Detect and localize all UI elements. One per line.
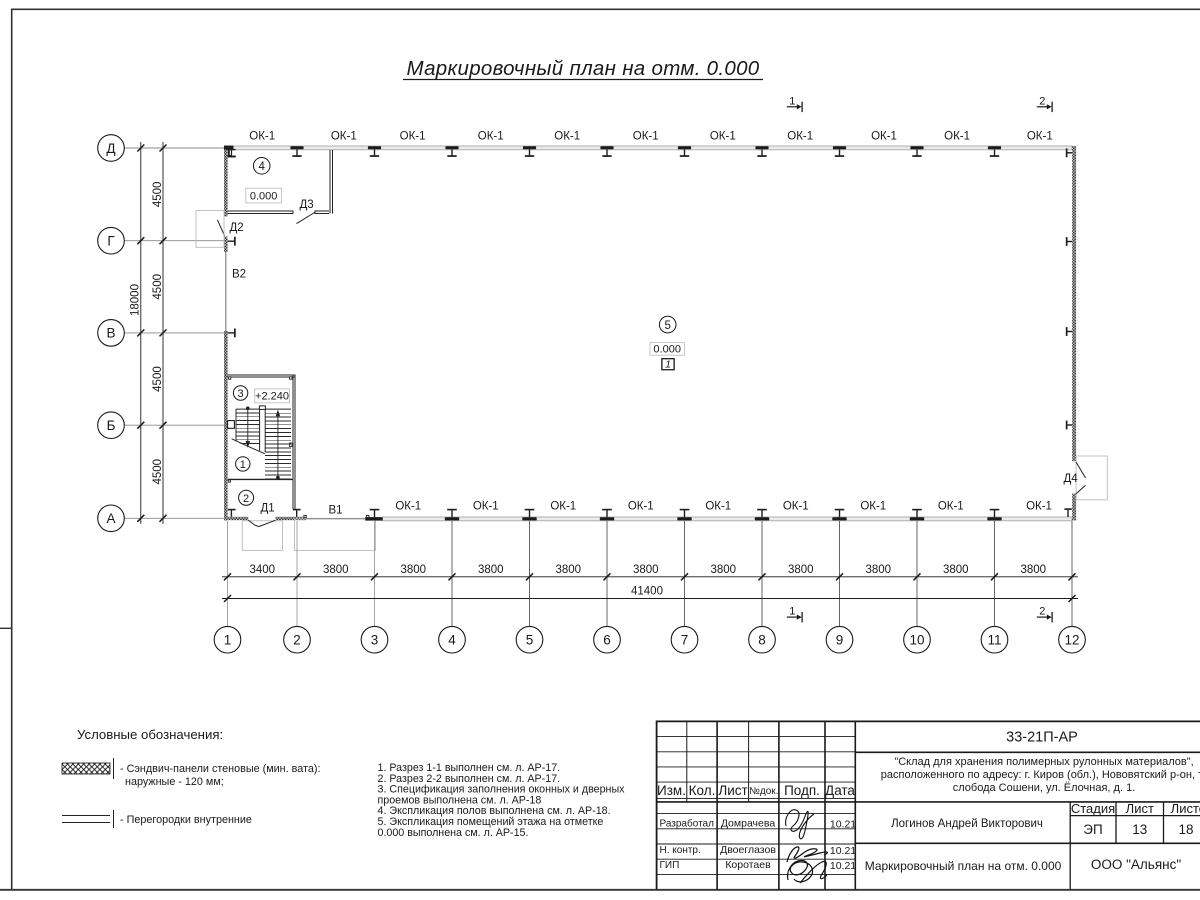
svg-text:Д: Д (106, 141, 115, 156)
svg-text:0.000: 0.000 (653, 344, 681, 356)
svg-text:Маркировочный план на отм. 0.0: Маркировочный план на отм. 0.000 (865, 859, 1062, 873)
svg-text:18: 18 (1178, 822, 1193, 837)
svg-text:11: 11 (987, 632, 1001, 647)
svg-text:ГИП: ГИП (660, 860, 680, 871)
svg-text:Стадия: Стадия (1071, 801, 1115, 816)
svg-text:Д4: Д4 (1064, 473, 1079, 485)
svg-text:3800: 3800 (710, 564, 736, 576)
svg-text:Лист: Лист (718, 783, 747, 798)
svg-text:В1: В1 (329, 505, 343, 517)
svg-text:- Сэндвич-панели стеновые (мин: - Сэндвич-панели стеновые (мин. вата): (120, 763, 320, 775)
svg-text:ОК-1: ОК-1 (860, 501, 886, 513)
svg-text:ОК-1: ОК-1 (1026, 501, 1052, 513)
svg-text:Условные обозначения:: Условные обозначения: (77, 727, 223, 742)
svg-text:10: 10 (909, 632, 924, 647)
svg-text:№док.: №док. (749, 786, 778, 797)
svg-text:ОК-1: ОК-1 (633, 131, 659, 143)
svg-text:1: 1 (789, 606, 795, 618)
svg-text:0.000: 0.000 (250, 190, 278, 202)
svg-text:0.000 выполнена см. л. АР-15.: 0.000 выполнена см. л. АР-15. (378, 827, 529, 839)
svg-text:13: 13 (1132, 822, 1147, 837)
svg-text:4500: 4500 (152, 182, 164, 208)
svg-text:Г: Г (107, 234, 115, 249)
svg-text:2: 2 (1039, 606, 1045, 618)
svg-text:ОК-1: ОК-1 (478, 131, 504, 143)
svg-text:- Перегородки внутренние: - Перегородки внутренние (120, 814, 252, 826)
svg-text:ОК-1: ОК-1 (331, 131, 357, 143)
svg-text:Подп.: Подп. (784, 783, 820, 798)
svg-text:Д2: Д2 (230, 222, 244, 234)
svg-text:4500: 4500 (152, 459, 164, 485)
svg-text:12: 12 (1064, 632, 1079, 647)
svg-text:ОК-1: ОК-1 (938, 501, 964, 513)
svg-text:Лист: Лист (1126, 801, 1154, 816)
svg-text:+2.240: +2.240 (255, 391, 289, 403)
svg-text:Логинов Андрей Викторович: Логинов Андрей Викторович (891, 818, 1043, 830)
svg-text:3800: 3800 (323, 564, 349, 576)
svg-text:18000: 18000 (130, 284, 142, 316)
svg-text:В2: В2 (232, 269, 246, 281)
svg-text:Маркировочный план на отм. 0.0: Маркировочный план на отм. 0.000 (407, 57, 760, 80)
svg-text:3400: 3400 (249, 564, 275, 576)
svg-text:7: 7 (681, 632, 689, 647)
svg-text:Домрачева: Домрачева (721, 818, 776, 830)
svg-text:41400: 41400 (631, 586, 663, 598)
svg-text:ОК-1: ОК-1 (944, 131, 970, 143)
svg-text:Листов: Листов (1171, 801, 1200, 816)
svg-text:3800: 3800 (478, 564, 504, 576)
svg-text:Н. контр.: Н. контр. (660, 845, 701, 856)
svg-text:3: 3 (371, 632, 379, 647)
svg-text:ОК-1: ОК-1 (787, 131, 813, 143)
svg-text:3: 3 (238, 388, 244, 400)
svg-text:ОК-1: ОК-1 (871, 131, 897, 143)
svg-text:Изм.: Изм. (657, 783, 686, 798)
svg-text:наружные - 120 мм;: наружные - 120 мм; (125, 776, 224, 788)
svg-text:2: 2 (293, 632, 301, 647)
svg-text:расположенного по адресу: г. К: расположенного по адресу: г. Киров (обл.… (881, 769, 1200, 781)
svg-text:10.21: 10.21 (830, 860, 856, 872)
svg-text:ОК-1: ОК-1 (249, 131, 275, 143)
svg-text:4: 4 (448, 632, 456, 647)
svg-text:ОК-1: ОК-1 (628, 501, 654, 513)
svg-text:3800: 3800 (865, 564, 891, 576)
svg-text:2: 2 (1039, 95, 1045, 107)
svg-text:ОК-1: ОК-1 (554, 131, 580, 143)
svg-text:А: А (106, 511, 115, 526)
svg-text:ОК-1: ОК-1 (1027, 131, 1053, 143)
svg-text:3800: 3800 (633, 564, 659, 576)
svg-text:ОК-1: ОК-1 (473, 501, 499, 513)
svg-text:6: 6 (603, 632, 611, 647)
svg-text:ООО "Альянс": ООО "Альянс" (1091, 857, 1181, 872)
svg-text:1: 1 (789, 95, 795, 107)
svg-text:ОК-1: ОК-1 (400, 131, 426, 143)
svg-text:3800: 3800 (555, 564, 581, 576)
svg-text:Коротаев: Коротаев (725, 859, 771, 871)
svg-text:4500: 4500 (152, 274, 164, 300)
svg-text:33-21П-АР: 33-21П-АР (1006, 730, 1078, 746)
svg-text:Б: Б (107, 418, 116, 433)
svg-text:Д3: Д3 (300, 199, 314, 211)
svg-text:Д1: Д1 (261, 503, 275, 515)
svg-text:1: 1 (224, 632, 232, 647)
svg-text:Двоеглазов: Двоеглазов (720, 844, 776, 856)
svg-text:ОК-1: ОК-1 (710, 131, 736, 143)
svg-text:В: В (106, 326, 115, 341)
svg-text:Кол.: Кол. (689, 783, 716, 798)
svg-text:3800: 3800 (1020, 564, 1046, 576)
svg-text:10.21: 10.21 (830, 845, 856, 857)
svg-text:1: 1 (665, 359, 671, 371)
svg-text:3800: 3800 (943, 564, 969, 576)
svg-text:4500: 4500 (152, 366, 164, 392)
svg-text:ОК-1: ОК-1 (550, 501, 576, 513)
svg-text:ОК-1: ОК-1 (783, 501, 809, 513)
svg-text:"Склад для хранения полимерных: "Склад для хранения полимерных рулонных … (894, 756, 1193, 768)
svg-text:8: 8 (758, 632, 766, 647)
svg-text:ОК-1: ОК-1 (705, 501, 731, 513)
svg-text:2: 2 (243, 493, 249, 505)
svg-text:5: 5 (526, 632, 534, 647)
svg-text:ЭП: ЭП (1083, 822, 1102, 837)
svg-text:слобода Сошени, ул. Ёлочная, д: слобода Сошени, ул. Ёлочная, д. 1. (953, 782, 1136, 794)
svg-text:5: 5 (664, 320, 670, 332)
svg-text:3800: 3800 (400, 564, 426, 576)
svg-text:9: 9 (836, 632, 844, 647)
svg-text:1: 1 (240, 459, 246, 471)
svg-text:Дата: Дата (825, 783, 855, 798)
svg-text:ОК-1: ОК-1 (395, 501, 421, 513)
svg-text:10.21: 10.21 (830, 819, 856, 831)
svg-text:Разработал: Разработал (660, 818, 715, 830)
svg-text:4: 4 (258, 161, 265, 173)
svg-text:3800: 3800 (788, 564, 814, 576)
